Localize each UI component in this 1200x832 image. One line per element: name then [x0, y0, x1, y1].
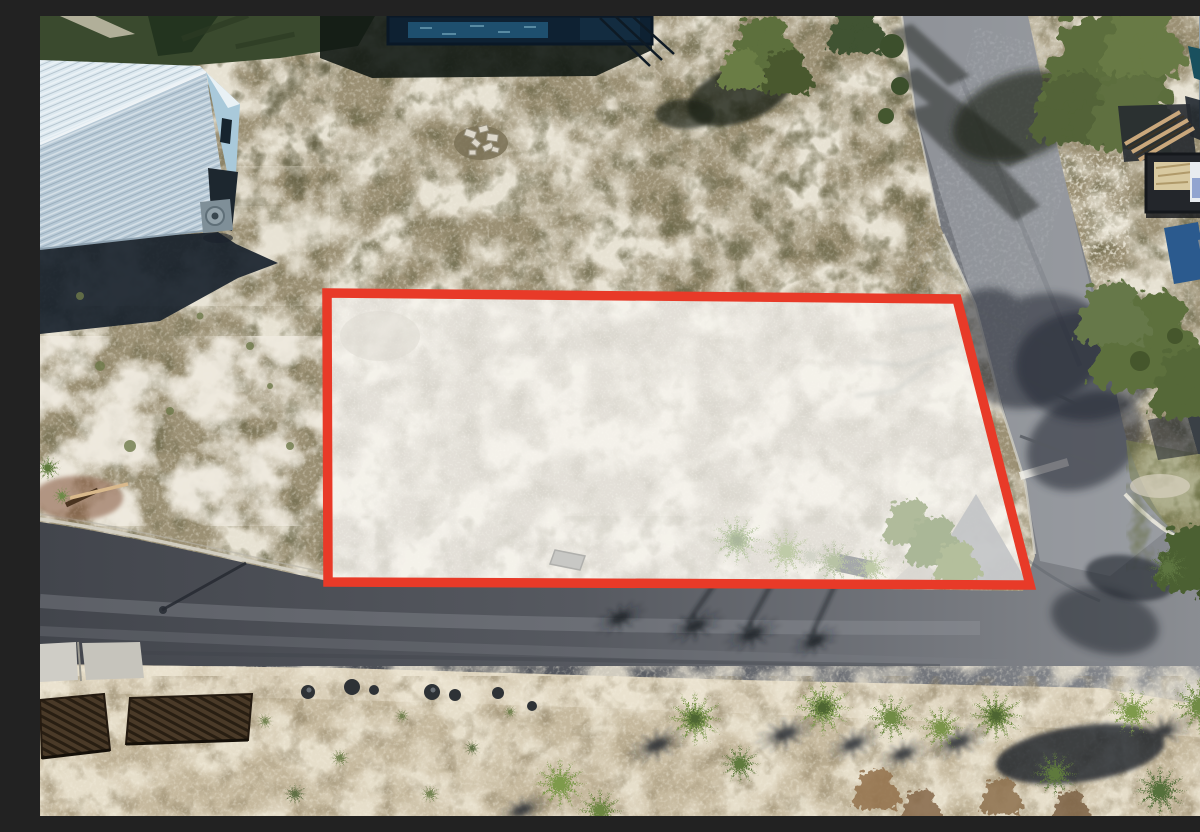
lot-highlight-wash: [327, 293, 1030, 585]
construction-dumpster: [1146, 154, 1200, 218]
gable-window: [220, 118, 232, 144]
aerial-photo: [40, 16, 1200, 816]
highlighted-lot: [320, 286, 1040, 596]
concrete-pads: [40, 642, 144, 682]
